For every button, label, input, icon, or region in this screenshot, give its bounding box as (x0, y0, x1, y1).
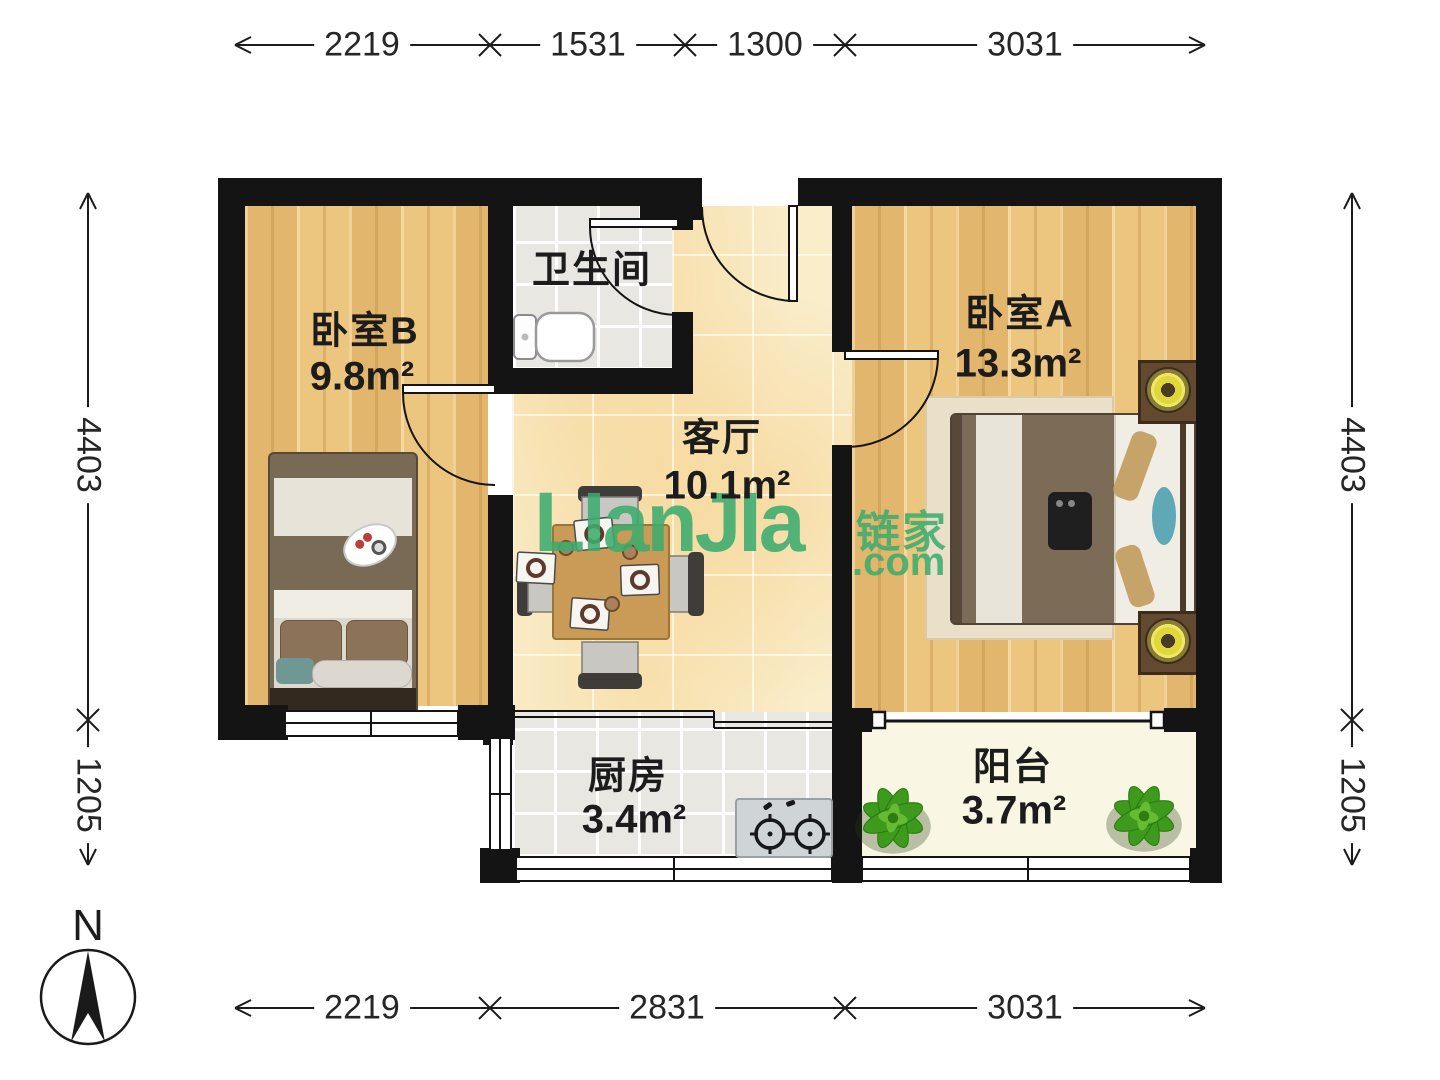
area-living-room: 10.1m² (664, 464, 791, 509)
tray (337, 516, 402, 573)
dim-right-1: 4403 (1333, 407, 1370, 503)
area-balcony: 3.7m² (962, 789, 1067, 834)
toilet (514, 313, 594, 361)
plant-left (855, 785, 931, 854)
label-bathroom: 卫生间 (532, 239, 652, 294)
floorplan-canvas: LIanJIa 链家 .com 卧室B 9.8m² 卫生间 客厅 10.1m² … (0, 0, 1440, 1080)
dim-bottom-3: 3031 (977, 989, 1073, 1026)
area-kitchen: 3.4m² (582, 798, 687, 843)
dim-left-2: 1205 (69, 747, 106, 843)
area-bedroom-b: 9.8m² (310, 355, 415, 400)
label-living-room: 客厅 (682, 407, 762, 462)
window-balcony-top-right (1151, 712, 1164, 728)
partition-lines (512, 711, 1151, 728)
watermark-domain: .com (852, 540, 945, 585)
dim-left-1: 4403 (69, 407, 106, 503)
label-kitchen: 厨房 (588, 745, 668, 800)
doors (403, 206, 938, 485)
plant-right (1106, 783, 1182, 852)
dim-right-2: 1205 (1333, 747, 1370, 843)
label-bedroom-b: 卧室B (310, 300, 419, 355)
compass-north-label: N (72, 901, 104, 951)
window-balcony-top-left (872, 712, 885, 728)
dim-bottom-1: 2219 (314, 989, 410, 1026)
door-bedroom-a (845, 351, 938, 447)
dim-top-2: 1531 (540, 26, 636, 63)
dim-top-3: 1300 (717, 26, 813, 63)
door-bedroom-b (403, 385, 495, 485)
dim-top-1: 2219 (314, 26, 410, 63)
compass (41, 950, 135, 1044)
dim-bottom-2: 2831 (619, 989, 715, 1026)
area-bedroom-a: 13.3m² (955, 342, 1082, 387)
label-bedroom-a: 卧室A (965, 283, 1074, 338)
label-balcony: 阳台 (973, 736, 1053, 791)
dim-top-4: 3031 (977, 26, 1073, 63)
door-entrance (702, 206, 797, 301)
stove (736, 799, 832, 857)
